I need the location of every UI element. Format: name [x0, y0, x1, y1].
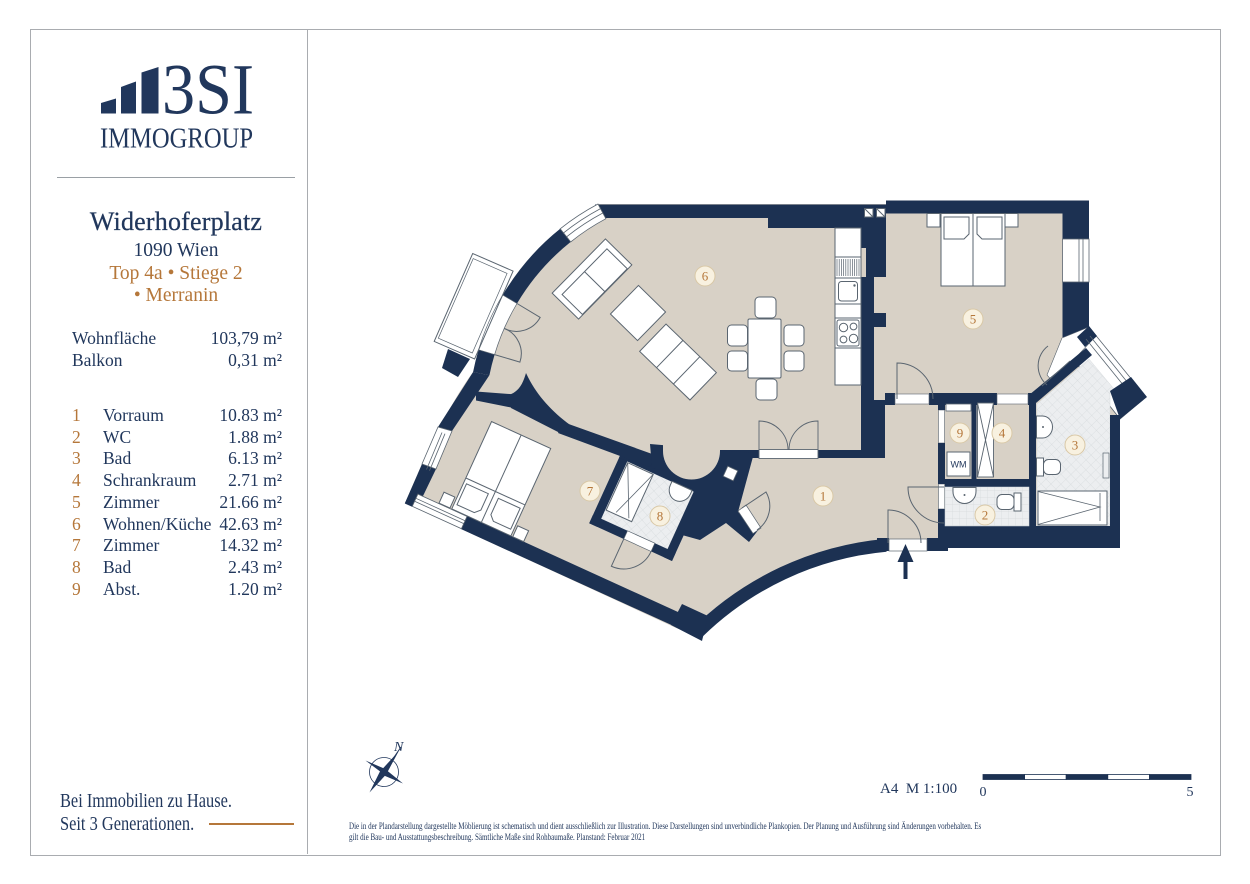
- svg-text:1: 1: [820, 489, 827, 504]
- svg-text:3: 3: [1072, 438, 1079, 453]
- svg-text:4: 4: [999, 426, 1006, 441]
- svg-text:5: 5: [970, 312, 977, 327]
- svg-text:5: 5: [1187, 785, 1194, 800]
- svg-text:7: 7: [587, 484, 594, 499]
- svg-text:2: 2: [982, 508, 989, 523]
- svg-text:8: 8: [657, 509, 664, 524]
- svg-text:9: 9: [957, 426, 964, 441]
- svg-text:6: 6: [702, 269, 709, 284]
- svg-text:N: N: [393, 740, 404, 755]
- svg-text:0: 0: [980, 785, 987, 800]
- svg-text:WM: WM: [951, 460, 967, 470]
